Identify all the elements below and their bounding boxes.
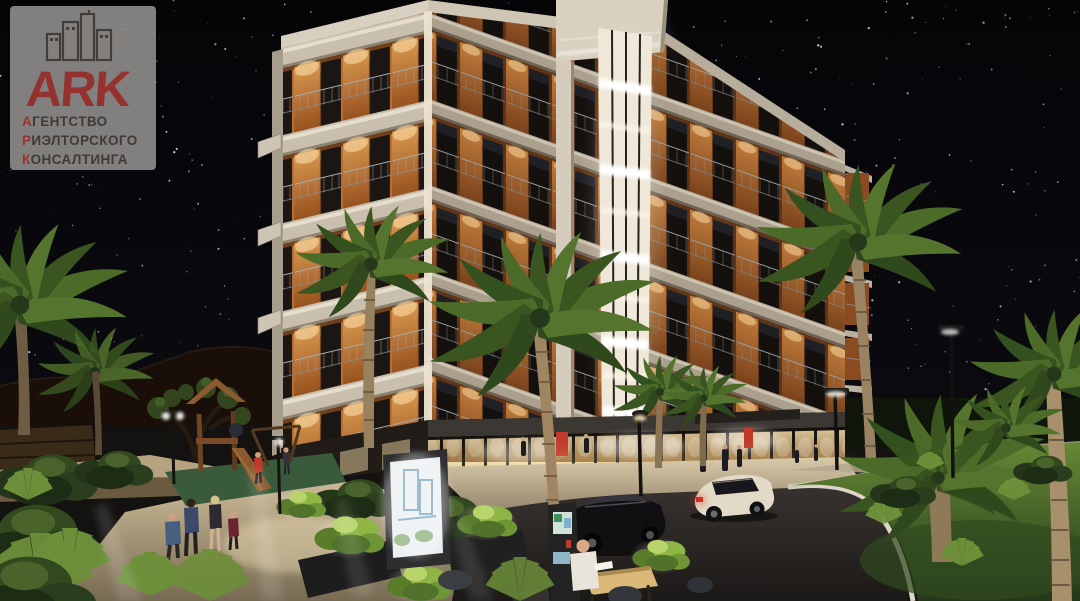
architectural-render: ARK АГЕНТСТВО РИЭЛТОРСКОГО КОНСАЛТИНГА <box>0 0 1080 601</box>
glowing-billboard <box>382 449 451 570</box>
stool-3 <box>687 577 713 593</box>
red-shop-banner-2 <box>744 428 753 448</box>
left-return <box>272 49 283 456</box>
logo-line-2: РИЭЛТОРСКОГО <box>22 131 138 150</box>
logo-line-1: АГЕНТСТВО <box>22 112 138 131</box>
logo-text-lines: АГЕНТСТВО РИЭЛТОРСКОГО КОНСАЛТИНГА <box>10 112 138 169</box>
watermark-logo: ARK АГЕНТСТВО РИЭЛТОРСКОГО КОНСАЛТИНГА <box>10 6 156 170</box>
night-scene <box>0 0 1080 601</box>
logo-brand-text: ARK <box>24 61 132 114</box>
logo-mark: ARK <box>19 10 147 114</box>
logo-line-3: КОНСАЛТИНГА <box>22 150 138 169</box>
stool <box>438 570 472 590</box>
red-shop-banner <box>556 432 568 456</box>
corner-edge <box>424 11 432 421</box>
